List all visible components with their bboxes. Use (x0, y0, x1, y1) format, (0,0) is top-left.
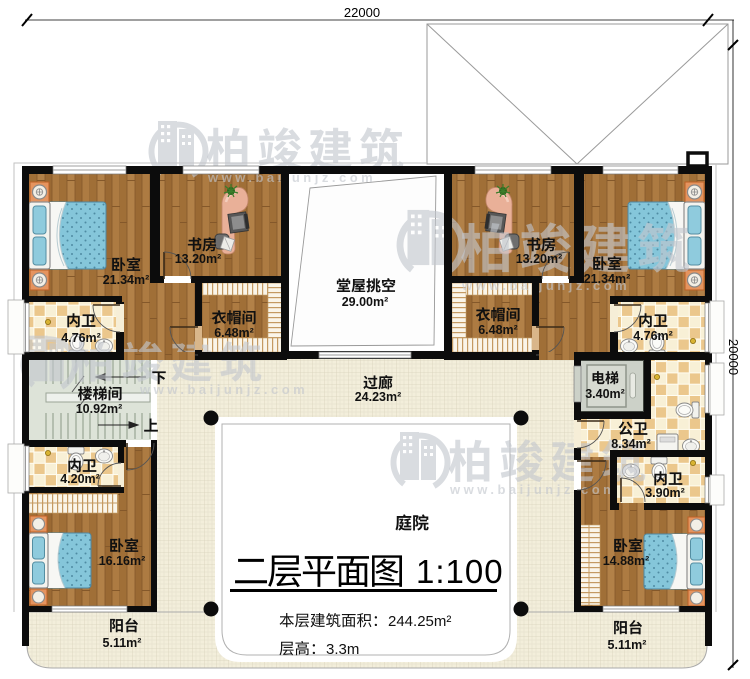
svg-text:24.23m²: 24.23m² (355, 390, 402, 404)
svg-text:13.20m²: 13.20m² (516, 252, 563, 266)
svg-text:4.76m²: 4.76m² (61, 331, 101, 345)
svg-text:21.34m²: 21.34m² (584, 272, 631, 286)
svg-text:5.11m²: 5.11m² (608, 638, 647, 652)
svg-text:13.20m²: 13.20m² (175, 252, 222, 266)
svg-text:www.baijunjz.com: www.baijunjz.com (139, 382, 308, 397)
svg-text:20000: 20000 (726, 339, 741, 375)
svg-text:3.90m²: 3.90m² (645, 486, 685, 500)
svg-text:www.baijunjz.com: www.baijunjz.com (449, 482, 618, 497)
svg-text:4.20m²: 4.20m² (60, 472, 100, 486)
svg-text:5.11m²: 5.11m² (103, 636, 142, 650)
svg-text:6.48m²: 6.48m² (214, 326, 254, 340)
svg-text:14.88m²: 14.88m² (603, 554, 650, 568)
svg-text:10.92m²: 10.92m² (76, 402, 123, 416)
svg-text:29.00m²: 29.00m² (342, 295, 389, 309)
svg-text:3.40m²: 3.40m² (585, 387, 625, 401)
svg-text:22000: 22000 (344, 5, 380, 20)
svg-text:16.16m²: 16.16m² (99, 554, 146, 568)
svg-text:244.25m²: 244.25m² (388, 613, 451, 630)
svg-text:21.34m²: 21.34m² (103, 273, 150, 287)
svg-text:6.48m²: 6.48m² (478, 323, 518, 337)
svg-text:1:100: 1:100 (416, 553, 504, 590)
svg-text:4.76m²: 4.76m² (633, 329, 673, 343)
svg-text:3.3m: 3.3m (326, 641, 359, 658)
svg-text:8.34m²: 8.34m² (611, 437, 651, 451)
